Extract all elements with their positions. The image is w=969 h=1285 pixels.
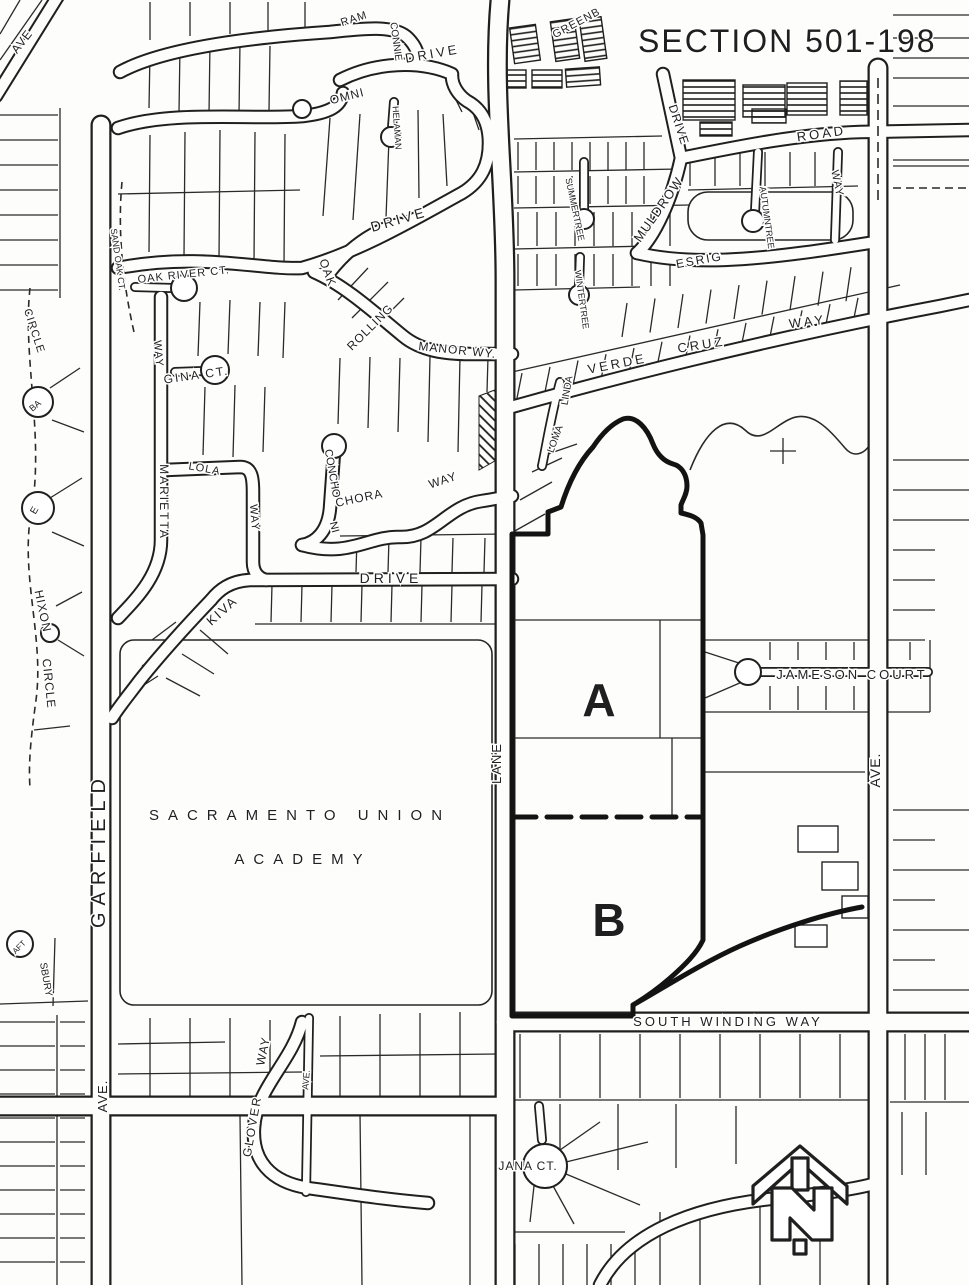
lot-line xyxy=(219,130,220,260)
street-label-kiva-drive: DRIVE xyxy=(360,570,423,586)
lot-line xyxy=(50,478,82,498)
lot-line xyxy=(705,652,742,664)
lot-line xyxy=(233,385,235,457)
street-label-jana-ct: JANA CT. xyxy=(498,1159,557,1173)
lot-line xyxy=(678,294,683,328)
lot-line xyxy=(118,190,300,194)
lot-line xyxy=(398,358,400,432)
street-label-omni: OMNI xyxy=(328,85,366,107)
lot-line xyxy=(790,276,795,310)
lot-line xyxy=(209,42,210,114)
lot-line xyxy=(705,682,742,698)
lot-line xyxy=(706,290,711,324)
lot-line xyxy=(182,654,214,674)
street-label-hixon-circle: CIRCLE xyxy=(39,658,58,709)
lot-line xyxy=(118,1042,225,1044)
lot-line xyxy=(269,46,270,110)
lot-line xyxy=(818,272,823,306)
lot-line xyxy=(552,1184,574,1224)
omni-west-bulb xyxy=(293,100,311,118)
parcel-label-a: A xyxy=(582,674,615,726)
parcel-label-b: B xyxy=(592,894,625,946)
lot-line xyxy=(198,302,200,356)
lot-line xyxy=(184,132,185,256)
north-arrow-tail xyxy=(794,1240,806,1254)
lot-line xyxy=(566,1174,640,1205)
lot-line xyxy=(323,118,330,216)
lot-line xyxy=(353,114,360,220)
lot-line xyxy=(428,357,430,442)
lot-line xyxy=(166,678,200,696)
scanned-plat-map-page: SECTION 501-198GREENBRAMAVECONNIEDRIVEOM… xyxy=(0,0,969,1285)
lot-line xyxy=(487,357,488,392)
pond-contour xyxy=(690,416,872,470)
lot-line xyxy=(418,110,419,198)
lot-line xyxy=(514,246,650,249)
lot-line xyxy=(391,585,392,622)
lot-line xyxy=(200,630,228,654)
lot-line xyxy=(481,585,482,622)
street-label-lane: LANE xyxy=(489,742,504,784)
street-label-way-nichora: WAY xyxy=(427,469,459,491)
lot-line xyxy=(484,538,485,572)
street-label-circle-northwest: CIRCLE xyxy=(21,307,47,355)
lot-line xyxy=(338,358,340,424)
lot-line xyxy=(734,285,739,319)
north-arrow-stem xyxy=(792,1158,808,1190)
lot-line xyxy=(421,585,422,622)
hixon-circle-street xyxy=(28,288,38,788)
lot-line xyxy=(361,585,362,622)
lot-line xyxy=(52,420,84,432)
lot-line xyxy=(514,169,680,172)
lot-line xyxy=(301,585,302,622)
south-winding-way-bold-edge xyxy=(633,907,862,1005)
lot-line xyxy=(530,1186,534,1222)
lot-line xyxy=(284,134,285,264)
street-label-way-marietta: WAY xyxy=(151,340,165,368)
lot-line xyxy=(320,1054,498,1056)
lot-line xyxy=(451,585,452,622)
lot-line xyxy=(452,538,453,572)
e-bulb xyxy=(22,492,54,524)
lot-line xyxy=(560,1122,600,1150)
street-label-ave-east-of-glover: AVE. xyxy=(300,1069,312,1090)
street-label-jameson-court: JAMESON COURT xyxy=(776,667,927,682)
lot-line xyxy=(271,585,272,622)
north-arrow-n-glyph xyxy=(772,1188,832,1240)
autumntree-bulb xyxy=(742,210,764,232)
street-label-ave-right: AVE. xyxy=(867,753,883,788)
street-label-south-winding-way: SOUTH WINDING WAY xyxy=(633,1014,823,1029)
lot-line xyxy=(520,482,552,500)
lot-line xyxy=(53,938,55,1006)
lot-line xyxy=(762,281,767,315)
lot-line xyxy=(420,538,421,572)
street-label-sbury: SBURY xyxy=(37,962,54,998)
lot-line xyxy=(203,387,205,455)
section-title: SECTION 501-198 xyxy=(638,23,937,59)
lot-line xyxy=(228,300,230,354)
place-label-academy: ACADEMY xyxy=(234,851,371,868)
map-canvas: SECTION 501-198GREENBRAMAVECONNIEDRIVEOM… xyxy=(0,0,969,1285)
lot-line xyxy=(622,303,627,337)
lot-line xyxy=(50,368,80,388)
street-label-way-mid: WAY xyxy=(247,504,261,532)
place-label-sacramento-union: SACRAMENTO UNION xyxy=(149,807,451,824)
lot-line xyxy=(443,114,447,186)
lot-line xyxy=(0,1001,88,1004)
lot-line xyxy=(514,136,662,139)
small-buildings-east xyxy=(795,826,868,947)
lot-line xyxy=(566,1142,648,1162)
lot-line xyxy=(368,357,370,428)
lot-line xyxy=(56,592,82,606)
lot-line xyxy=(34,726,70,730)
lot-line xyxy=(458,357,460,452)
street-label-way-northeast: WAY xyxy=(828,169,845,198)
lot-line xyxy=(254,132,255,262)
lot-line xyxy=(650,299,655,333)
street-label-garfield: GARFIELD xyxy=(88,772,110,928)
street-label-marietta: MARIETTA xyxy=(157,464,171,540)
lot-line xyxy=(239,42,240,114)
lot-line xyxy=(331,585,332,622)
jameson-court-bulb xyxy=(735,659,761,685)
lot-line xyxy=(513,514,545,532)
lot-line xyxy=(263,387,265,452)
street-label-garfield-ave: AVE. xyxy=(95,1080,110,1113)
lot-line xyxy=(58,640,84,656)
lot-line xyxy=(258,302,260,356)
lot-line xyxy=(283,302,285,358)
lot-line xyxy=(0,0,20,34)
lot-line xyxy=(52,532,84,546)
